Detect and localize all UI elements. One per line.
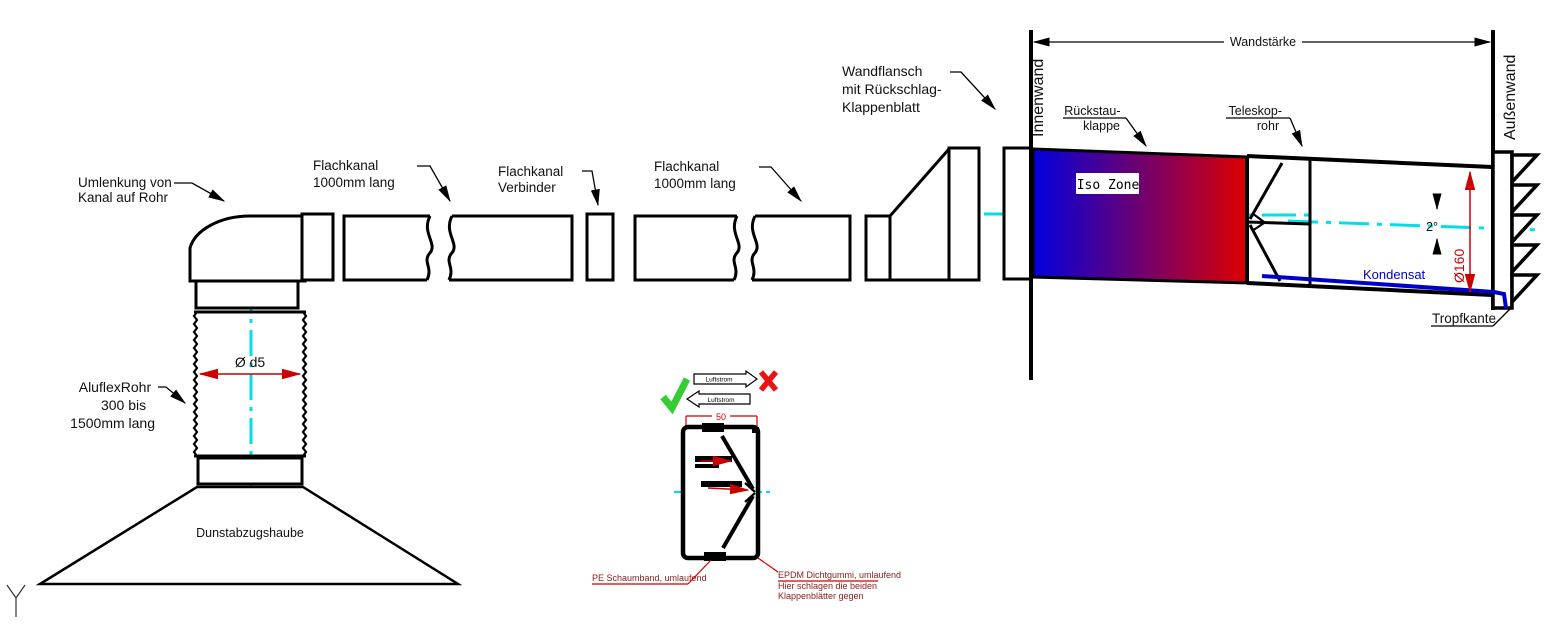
label-kondensat: Kondensat [1363, 267, 1426, 282]
label-umlenkung: Umlenkung von Kanal auf Rohr [78, 175, 176, 205]
vent-system-diagram: Ø d5 Dunstabzugshaube Innenwand Außenwan… [0, 0, 1544, 633]
wall-collar [1004, 148, 1031, 279]
flachkanal-verbinder [587, 214, 613, 280]
klappen-bar-2 [701, 481, 742, 487]
epdm-corner-seal [752, 427, 759, 433]
pe-schaumband-top [702, 423, 724, 432]
label-pe-schaumband: PE Schaumband, umlaufend [592, 573, 707, 583]
dim-160-text: Ø160 [1451, 249, 1467, 283]
klappen-housing [683, 427, 758, 558]
wandflansch-flange [949, 148, 979, 280]
elbow-flange [302, 214, 333, 280]
klappen-bar-1b [695, 464, 719, 468]
label-innenwand: Innenwand [1030, 59, 1047, 137]
label-dunstabzugshaube: Dunstabzugshaube [196, 526, 304, 540]
klappe-mid-line [1247, 222, 1310, 224]
elbow-collar [196, 281, 298, 308]
luftstrom-right-text: Luftstrom [705, 377, 732, 384]
iso-zone-gradient [1033, 149, 1247, 283]
dim-2grad-text: 2° [1426, 220, 1438, 234]
dim-d5-text: Ø d5 [235, 354, 266, 370]
diagram-canvas: Ø d5 Dunstabzugshaube Innenwand Außenwan… [0, 0, 1544, 633]
dim-50-text: 50 [716, 412, 726, 422]
elbow-kanal-auf-rohr [190, 216, 305, 281]
label-iso-zone: Iso Zone [1077, 178, 1140, 193]
pe-schaumband-bottom [704, 552, 726, 561]
label-aussenwand: Außenwand [1502, 55, 1519, 140]
wandflansch-adapter-neck [866, 216, 890, 280]
label-tropfkante: Tropfkante [1432, 311, 1496, 326]
haube-collar [198, 458, 302, 484]
dim-wandstaerke-text: Wandstärke [1230, 35, 1296, 49]
luftstrom-left-text: Luftstrom [707, 397, 734, 404]
gitter-plate [1493, 152, 1512, 308]
